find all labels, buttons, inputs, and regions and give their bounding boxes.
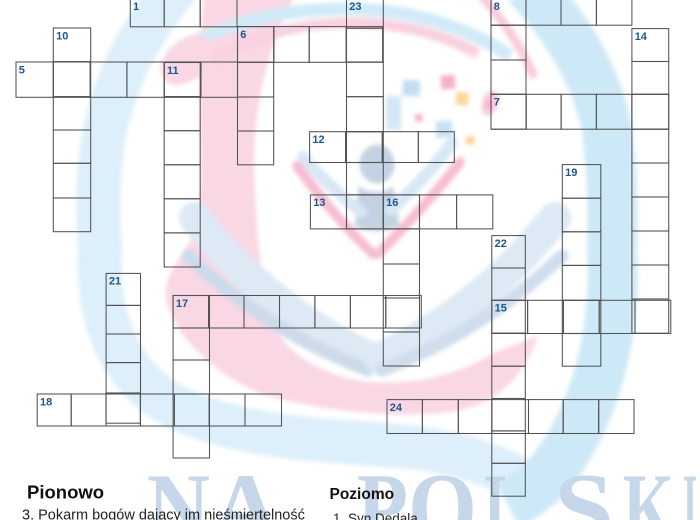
svg-text:K: K xyxy=(623,454,674,520)
svg-text:O: O xyxy=(408,454,477,520)
svg-text:21: 21 xyxy=(109,276,121,288)
svg-text:11: 11 xyxy=(167,65,179,77)
svg-text:Pionowo: Pionowo xyxy=(27,482,104,503)
svg-text:Poziomo: Poziomo xyxy=(330,486,395,503)
svg-text:23: 23 xyxy=(349,1,361,13)
svg-text:15: 15 xyxy=(495,303,507,315)
svg-text:18: 18 xyxy=(40,396,52,408)
svg-text:13: 13 xyxy=(313,197,325,209)
svg-text:14: 14 xyxy=(635,31,648,43)
svg-text:24: 24 xyxy=(390,402,403,414)
svg-text:3. Pokarm bogów dający im nieś: 3. Pokarm bogów dający im nieśmiertelnoś… xyxy=(22,508,305,520)
svg-text:6: 6 xyxy=(240,29,246,41)
svg-text:19: 19 xyxy=(565,167,577,179)
svg-text:S: S xyxy=(554,454,614,520)
svg-text:7: 7 xyxy=(494,97,500,109)
svg-text:16: 16 xyxy=(386,197,398,209)
svg-text:8: 8 xyxy=(494,1,500,13)
svg-text:17: 17 xyxy=(176,298,188,310)
svg-text:10: 10 xyxy=(56,30,68,42)
svg-text:1: 1 xyxy=(133,1,139,13)
svg-text:I: I xyxy=(683,454,697,520)
svg-text:1. Syn Dedala: 1. Syn Dedala xyxy=(333,511,418,520)
svg-text:L: L xyxy=(484,454,524,520)
svg-text:5: 5 xyxy=(19,64,25,76)
svg-text:22: 22 xyxy=(495,238,507,250)
svg-text:12: 12 xyxy=(312,134,324,146)
